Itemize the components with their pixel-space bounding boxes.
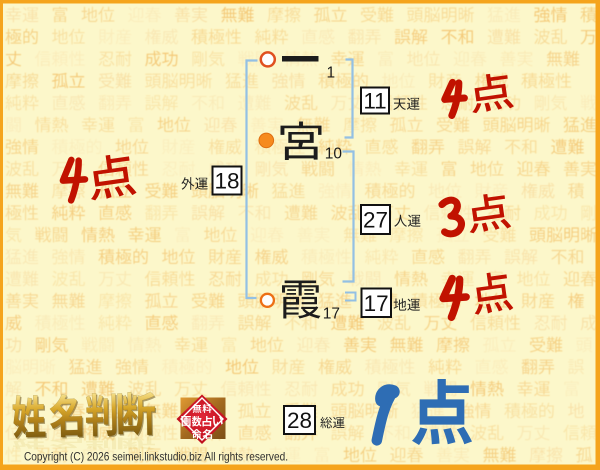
svg-text:10: 10 — [325, 146, 343, 163]
svg-text:27: 27 — [363, 208, 388, 233]
svg-text:28: 28 — [287, 408, 312, 433]
svg-text:17: 17 — [323, 306, 340, 323]
svg-text:1: 1 — [327, 65, 336, 82]
svg-text:17: 17 — [364, 291, 389, 316]
svg-text:11: 11 — [363, 89, 386, 114]
svg-text:18: 18 — [214, 169, 239, 194]
svg-text:Copyright (C) 2026 seimei.link: Copyright (C) 2026 seimei.linkstudio.biz… — [24, 450, 288, 464]
